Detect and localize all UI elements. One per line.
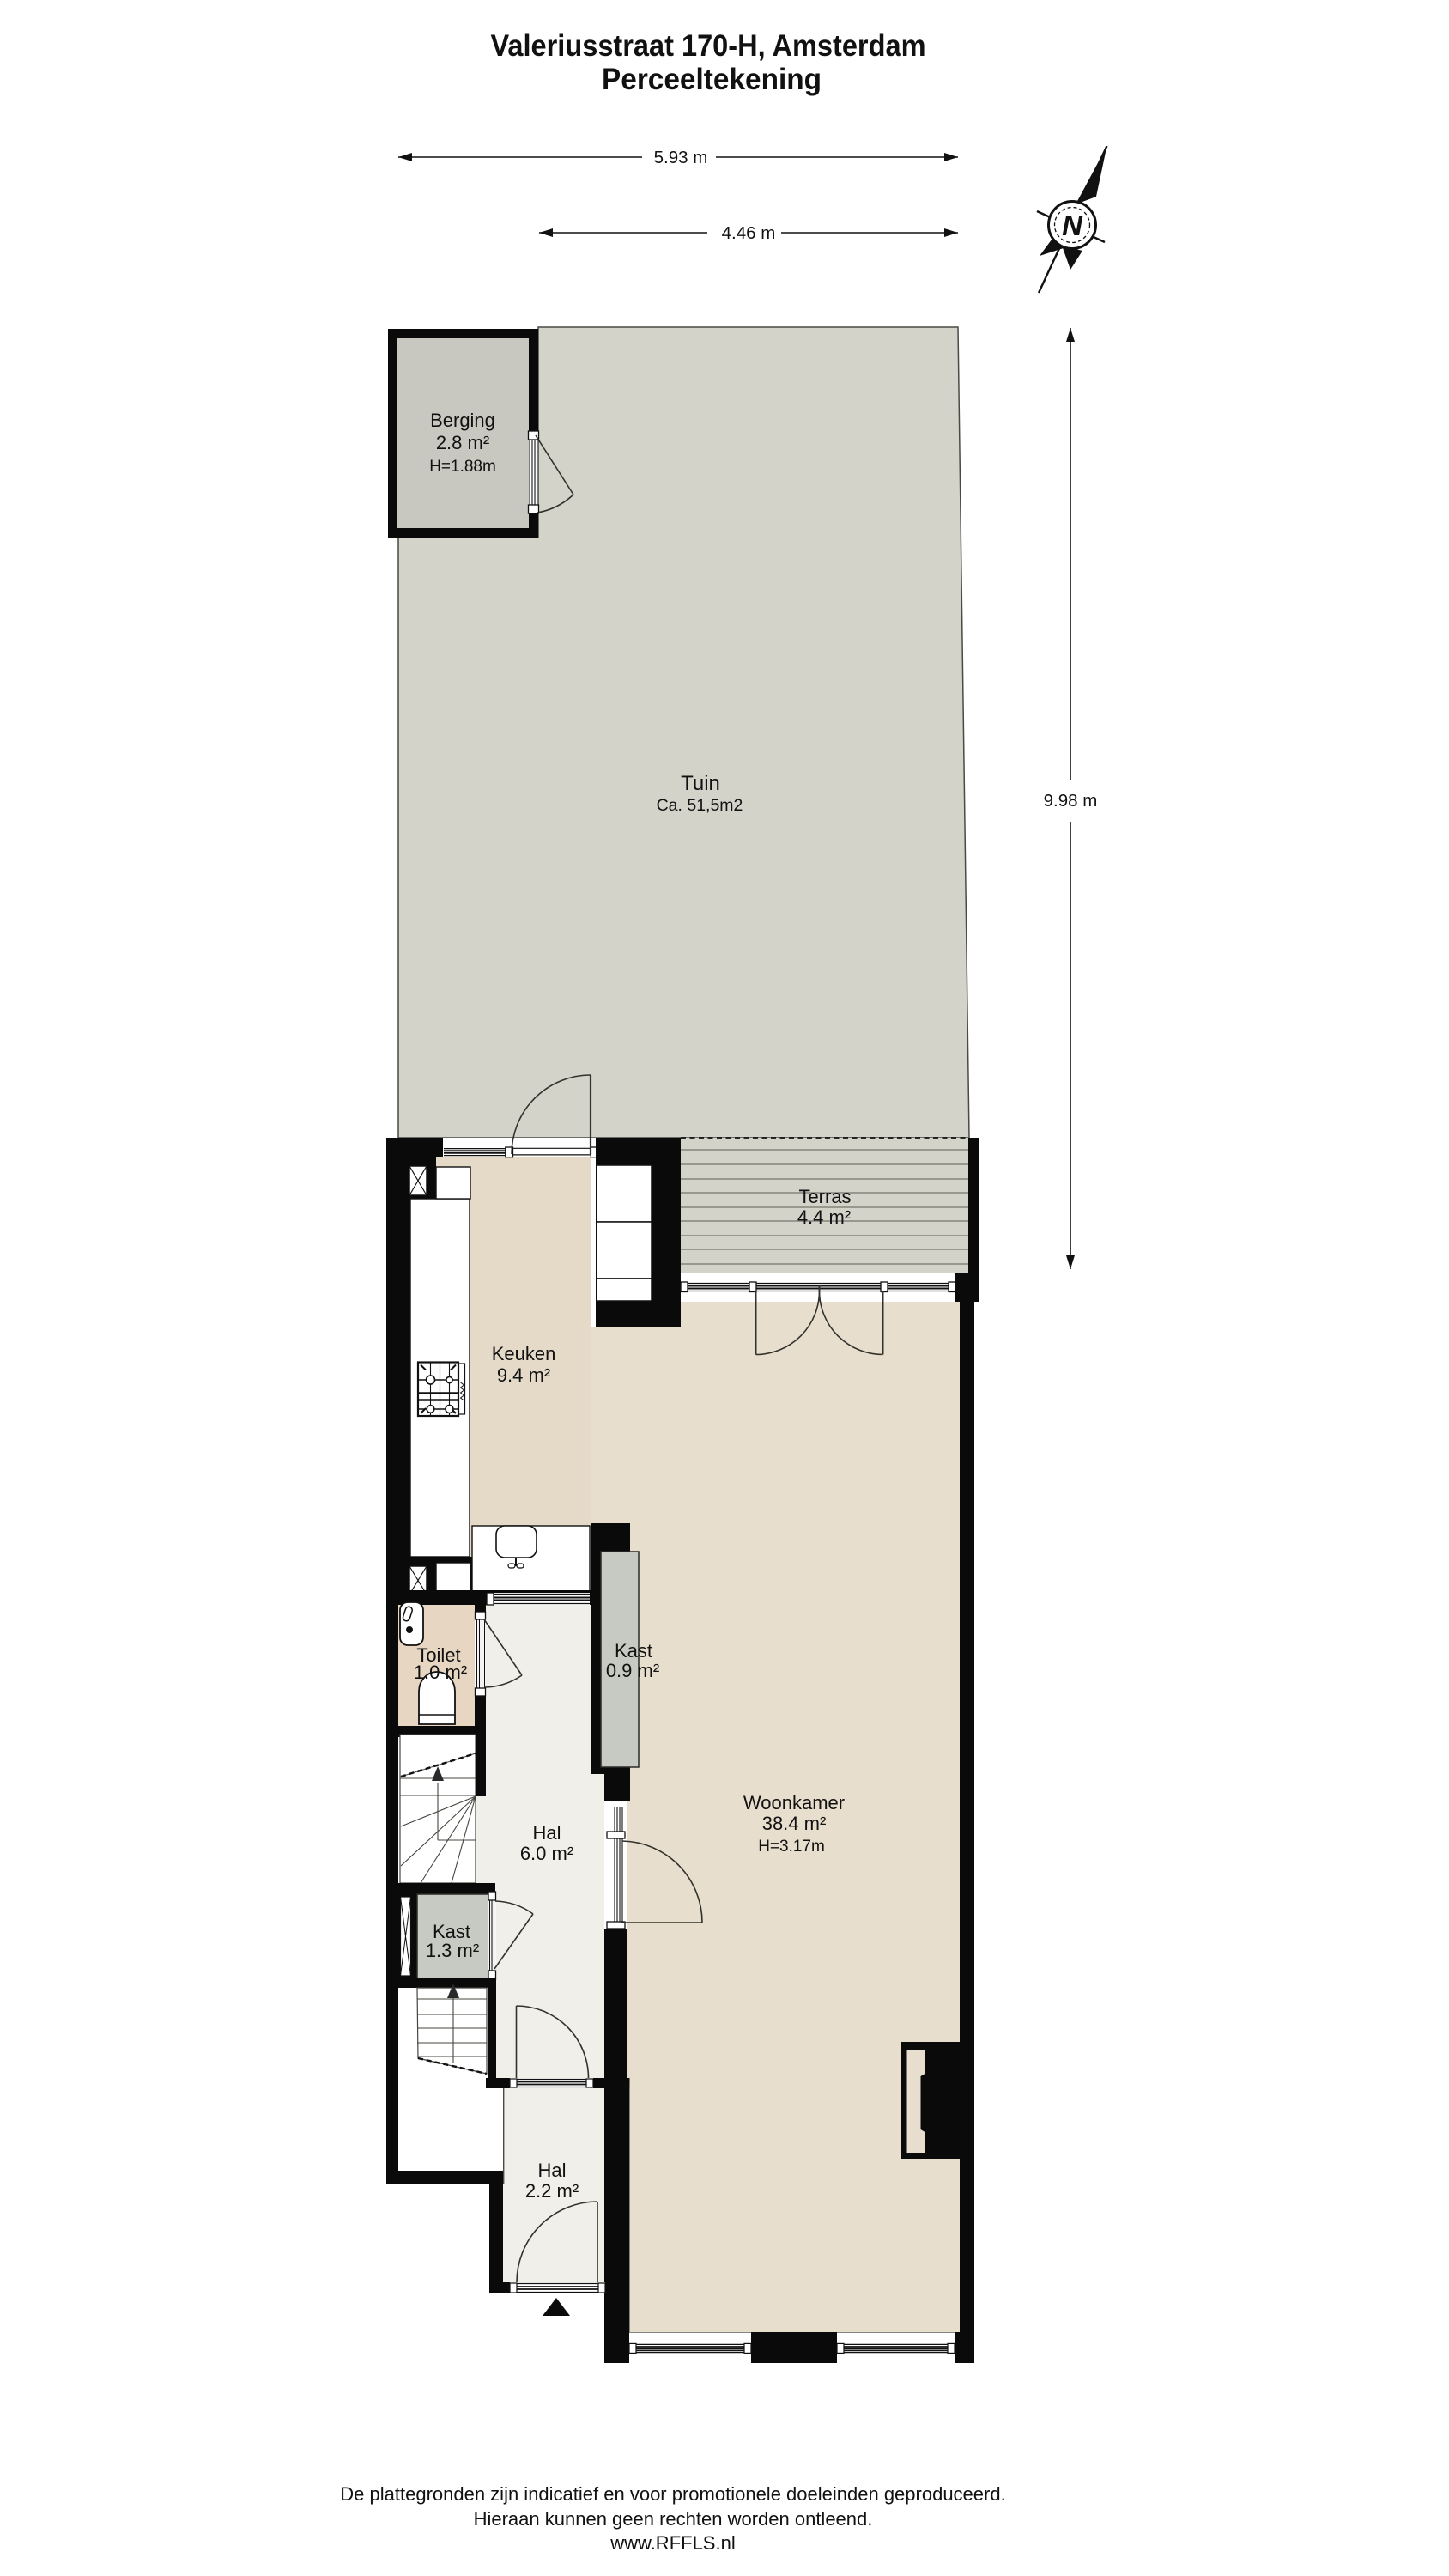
svg-text:4.46 m: 4.46 m <box>722 223 776 243</box>
svg-text:Perceeltekening: Perceeltekening <box>602 63 822 96</box>
svg-text:Ca. 51,5m2: Ca. 51,5m2 <box>657 796 743 815</box>
svg-text:Valeriusstraat 170-H, Amsterda: Valeriusstraat 170-H, Amsterdam <box>491 29 926 63</box>
svg-text:38.4 m²: 38.4 m² <box>762 1813 827 1834</box>
svg-text:1.3 m²: 1.3 m² <box>426 1940 479 1961</box>
svg-text:6.0 m²: 6.0 m² <box>520 1843 573 1864</box>
svg-text:De plattegronden zijn indicati: De plattegronden zijn indicatief en voor… <box>340 2483 1005 2505</box>
svg-text:4.4 m²: 4.4 m² <box>797 1206 851 1228</box>
svg-text:H=1.88m: H=1.88m <box>429 458 496 476</box>
svg-text:1.0 m²: 1.0 m² <box>414 1662 467 1683</box>
svg-text:Kast: Kast <box>615 1640 652 1662</box>
svg-text:H=3.17m: H=3.17m <box>758 1838 825 1856</box>
svg-text:2.2 m²: 2.2 m² <box>525 2180 579 2202</box>
svg-text:9.98 m: 9.98 m <box>1044 791 1098 811</box>
svg-text:0.9 m²: 0.9 m² <box>606 1660 659 1681</box>
svg-text:2.8 m²: 2.8 m² <box>436 432 489 453</box>
svg-text:www.RFFLS.nl: www.RFFLS.nl <box>609 2532 735 2554</box>
svg-text:Keuken: Keuken <box>492 1343 556 1364</box>
svg-text:Hal: Hal <box>532 1822 561 1844</box>
svg-text:Berging: Berging <box>430 410 495 431</box>
svg-text:Hieraan kunnen geen rechten wo: Hieraan kunnen geen rechten worden ontle… <box>474 2508 873 2530</box>
svg-text:5.93 m: 5.93 m <box>654 148 708 167</box>
svg-text:Woonkamer: Woonkamer <box>743 1792 845 1814</box>
svg-text:Tuin: Tuin <box>681 772 720 795</box>
svg-text:Hal: Hal <box>537 2160 566 2181</box>
svg-text:N: N <box>1062 210 1083 241</box>
svg-text:Terras: Terras <box>798 1186 851 1207</box>
svg-text:9.4 m²: 9.4 m² <box>497 1364 550 1386</box>
